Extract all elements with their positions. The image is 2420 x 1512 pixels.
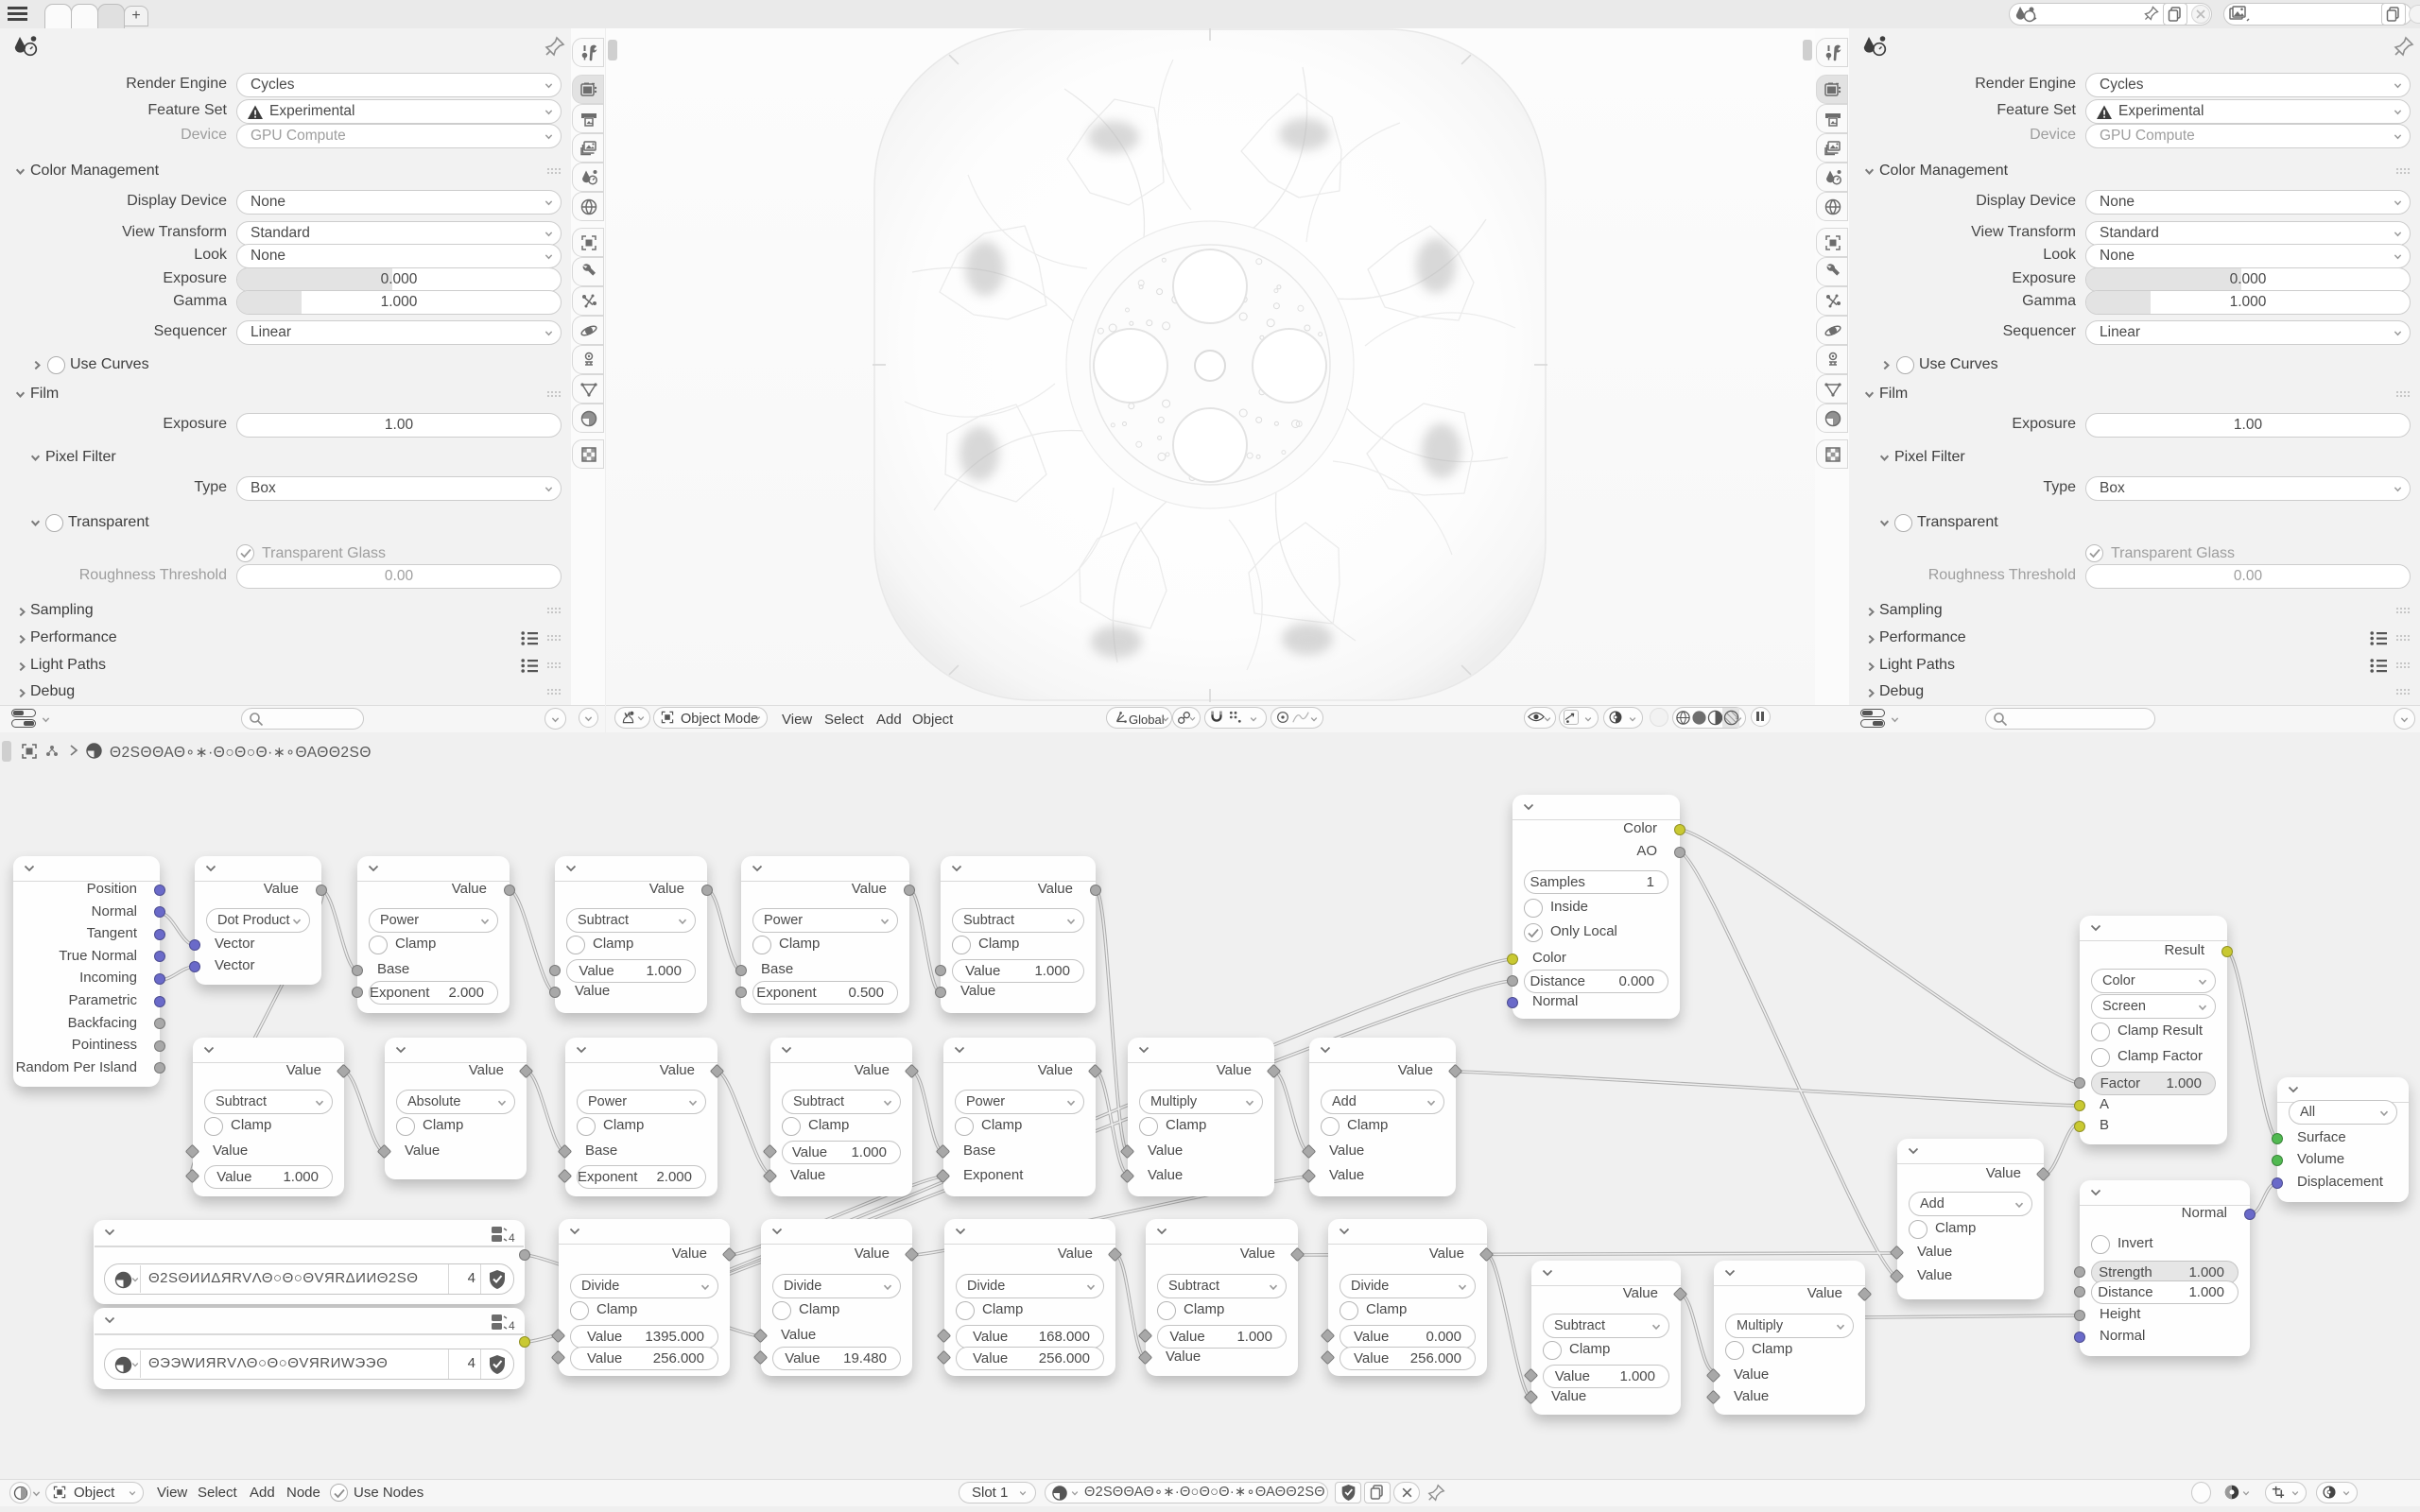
svg-text:4: 4 — [509, 1231, 515, 1244]
svg-text:4: 4 — [509, 1319, 515, 1332]
